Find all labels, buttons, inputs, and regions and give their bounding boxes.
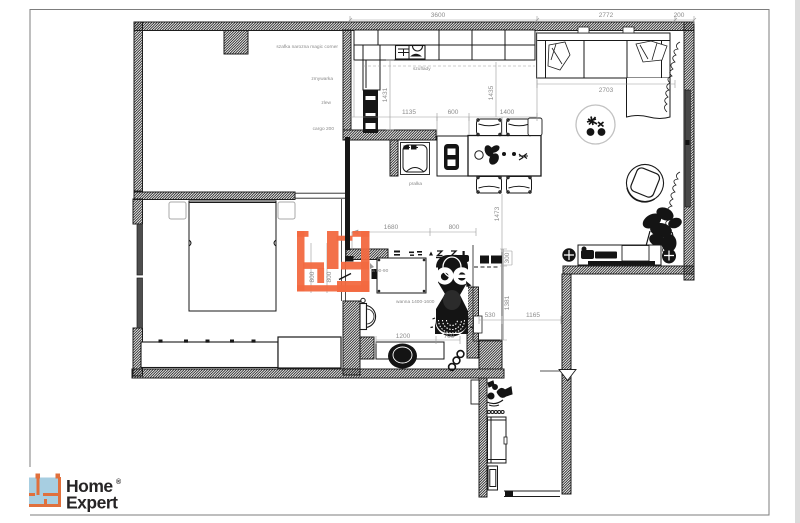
svg-text:1135: 1135 — [402, 109, 416, 116]
svg-text:wanna 1400-1600: wanna 1400-1600 — [396, 299, 435, 305]
svg-text:®: ® — [116, 478, 122, 486]
svg-text:1400: 1400 — [500, 109, 515, 116]
svg-text:800: 800 — [309, 271, 316, 282]
svg-text:1431: 1431 — [382, 87, 389, 102]
svg-text:2703: 2703 — [599, 87, 614, 94]
svg-text:300: 300 — [504, 252, 511, 263]
svg-text:1381: 1381 — [504, 295, 511, 310]
svg-text:szuflady: szuflady — [413, 66, 431, 72]
svg-text:1473: 1473 — [494, 206, 501, 221]
svg-text:1680: 1680 — [384, 224, 399, 231]
svg-text:cargo 200: cargo 200 — [313, 126, 335, 132]
svg-text:pralka: pralka — [409, 181, 422, 187]
svg-text:800: 800 — [449, 224, 460, 231]
svg-text:530: 530 — [485, 312, 496, 319]
svg-text:3600: 3600 — [431, 12, 446, 19]
svg-text:600: 600 — [448, 109, 459, 116]
svg-text:1165: 1165 — [526, 312, 540, 319]
svg-text:1200: 1200 — [396, 333, 411, 340]
svg-text:200: 200 — [674, 12, 685, 19]
svg-text:zmywarka: zmywarka — [311, 76, 333, 82]
svg-text:zlew: zlew — [321, 100, 331, 106]
svg-text:800: 800 — [326, 271, 333, 282]
svg-text:700: 700 — [444, 333, 455, 340]
svg-text:a 90-90: a 90-90 — [372, 268, 389, 274]
svg-text:Expert: Expert — [66, 493, 118, 513]
svg-text:2772: 2772 — [599, 12, 614, 19]
svg-text:1435: 1435 — [488, 85, 495, 100]
svg-text:szafka narozna magic corner: szafka narozna magic corner — [276, 44, 338, 50]
